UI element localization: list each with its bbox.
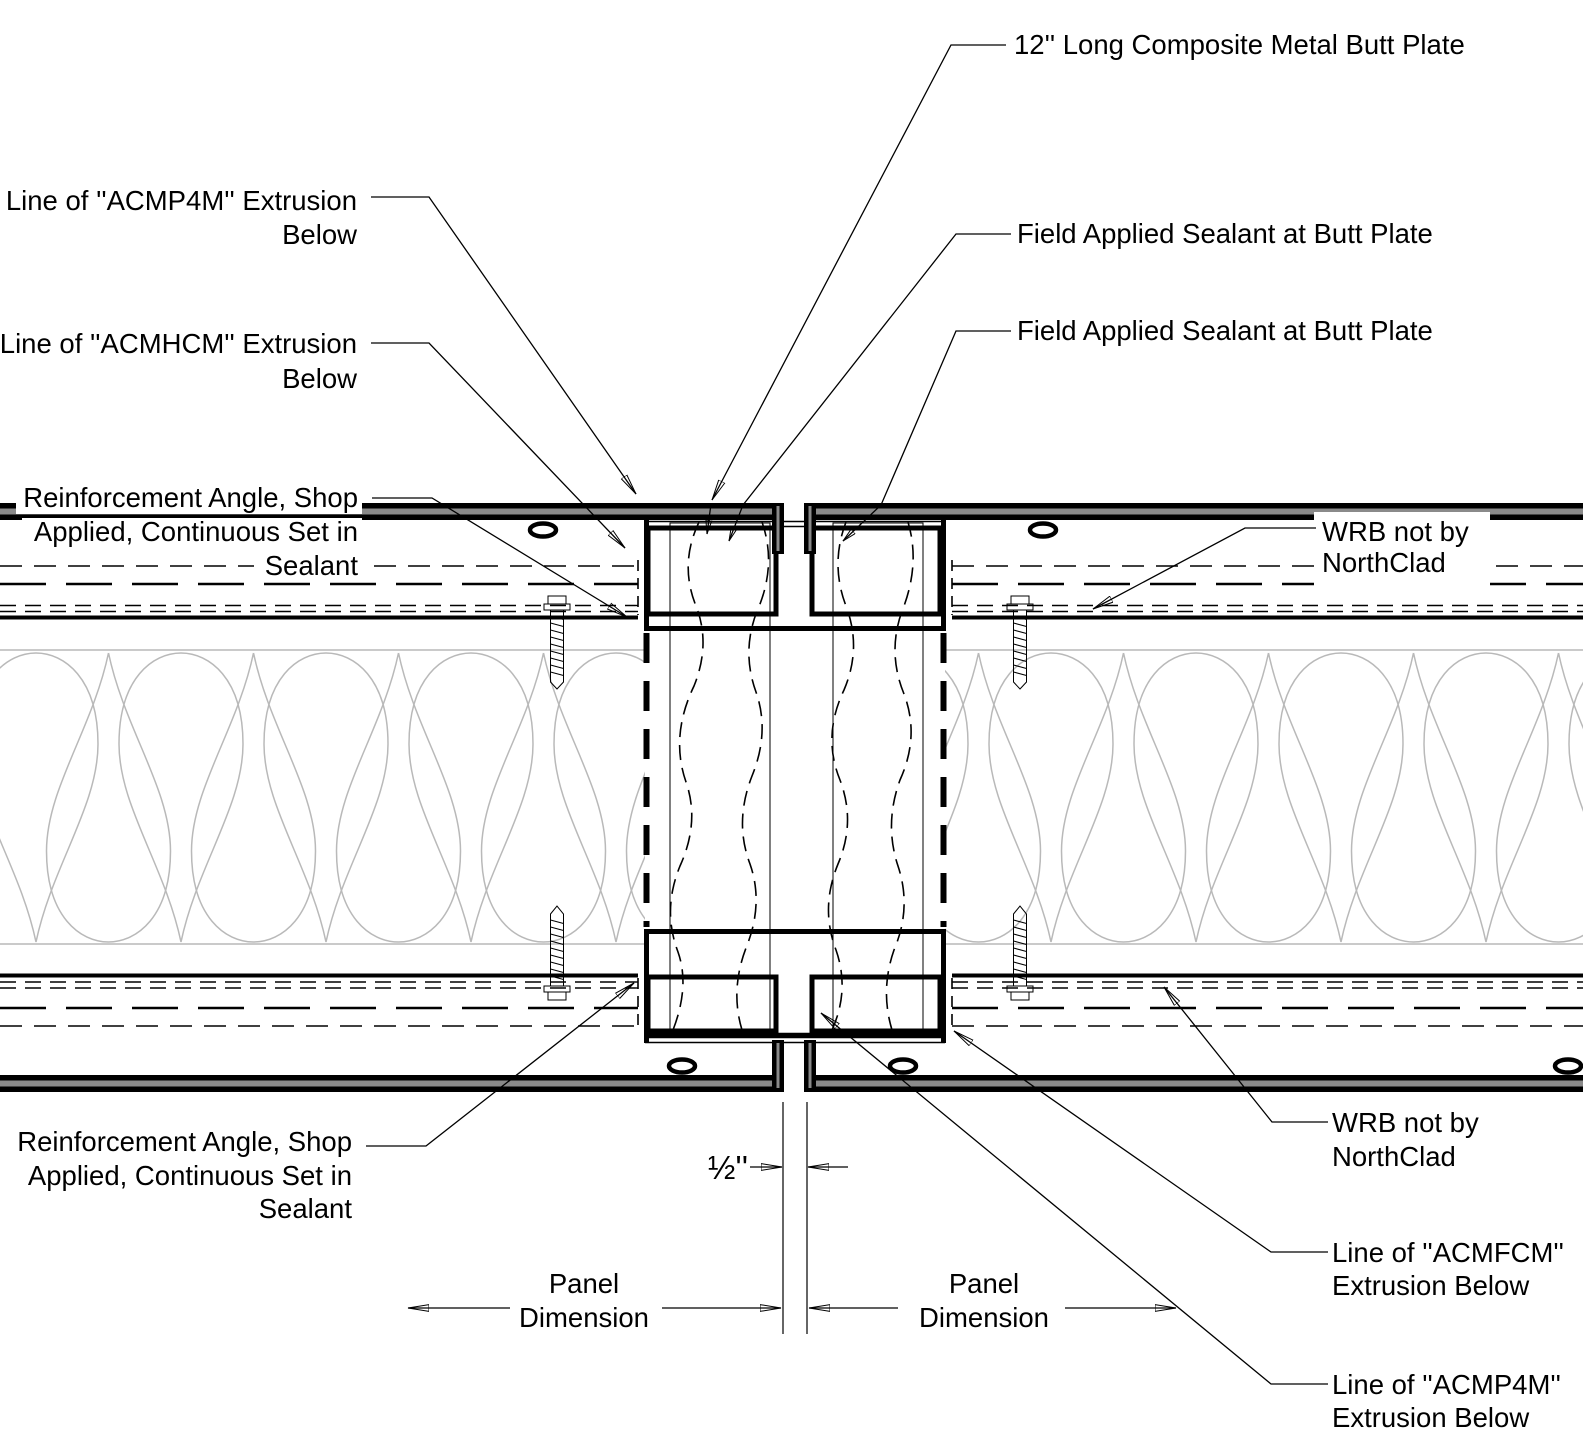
wrb-dashed-lines-bottom [0,976,1583,1031]
label-acmfcm-line1: Line of ''ACMFCM'' [1332,1237,1564,1268]
label-wrb-top-line2: NorthClad [1322,547,1446,578]
weep-slot [890,1060,916,1073]
panel-screw-top-left [544,596,570,689]
label-reinforcement-bottom-line3: Sealant [259,1193,353,1224]
dimension-group: ½'' Panel Dimension Panel Dimension [408,1102,1176,1334]
reinforcement-angle-top-left [648,528,776,614]
label-reinforcement-top-line1: Reinforcement Angle, Shop [23,482,358,513]
leader-field-sealant-1 [743,234,1011,505]
label-reinforcement-bottom-line2: Applied, Continuous Set in [28,1160,352,1191]
annotations: 12'' Long Composite Metal Butt Plate Fie… [0,29,1564,1433]
butt-joint-detail-diagram: ½'' Panel Dimension Panel Dimension 12''… [0,0,1583,1451]
label-reinforcement-top-line2: Applied, Continuous Set in [34,516,358,547]
label-acmhcm-line1: Line of ''ACMHCM'' Extrusion [0,328,357,359]
label-acmp4m-top-line2: Below [282,219,357,250]
panel-screw-bottom-left [544,906,570,1000]
joint-gap-dimension: ½'' [708,1149,748,1186]
panel-screw-top-right [1007,596,1033,689]
label-acmhcm-line2: Below [282,363,357,394]
label-reinforcement-top-line3: Sealant [265,550,359,581]
weep-slot [669,1060,695,1073]
label-acmp4m-bottom-line1: Line of ''ACMP4M'' [1332,1369,1561,1400]
label-wrb-bottom-line2: NorthClad [1332,1141,1456,1172]
label-acmfcm-line2: Extrusion Below [1332,1270,1529,1301]
label-butt-plate: 12'' Long Composite Metal Butt Plate [1014,29,1465,60]
leader-acmfcm-bottom [954,1031,1328,1252]
label-reinforcement-bottom-line1: Reinforcement Angle, Shop [17,1126,352,1157]
label-acmp4m-bottom-line2: Extrusion Below [1332,1402,1529,1433]
panel-dimension-left-line1: Panel [549,1268,619,1299]
detail-drawing-canvas: ½'' Panel Dimension Panel Dimension 12''… [0,0,1583,1451]
butt-plate-assembly [644,519,946,1043]
leader-field-sealant-2 [881,331,1011,505]
label-wrb-top-line1: WRB not by [1322,516,1469,547]
weep-slot [1555,1060,1581,1073]
label-wrb-bottom-line1: WRB not by [1332,1107,1479,1138]
leader-acmp4m-top [371,197,636,494]
leader-wrb-top [1093,528,1316,609]
label-acmp4m-top-line1: Line of ''ACMP4M'' Extrusion [6,185,357,216]
leader-butt-plate [712,45,1006,500]
panel-dimension-left-line2: Dimension [519,1302,649,1333]
panel-dimension-right-line2: Dimension [919,1302,1049,1333]
weep-slot [530,524,556,537]
panel-dimension-right-line1: Panel [949,1268,1019,1299]
sealant-bead-texture [670,522,923,1031]
reinforcement-angle-bottom-left [648,977,776,1031]
label-field-sealant-2: Field Applied Sealant at Butt Plate [1017,315,1433,346]
panel-face-bottom [0,1040,1583,1092]
reinforcement-angle-top-right [812,528,940,614]
reinforcement-angle-bottom-right [812,977,940,1031]
weep-slot [1030,524,1056,537]
insulation-batt [0,650,1583,944]
label-field-sealant-1: Field Applied Sealant at Butt Plate [1017,218,1433,249]
